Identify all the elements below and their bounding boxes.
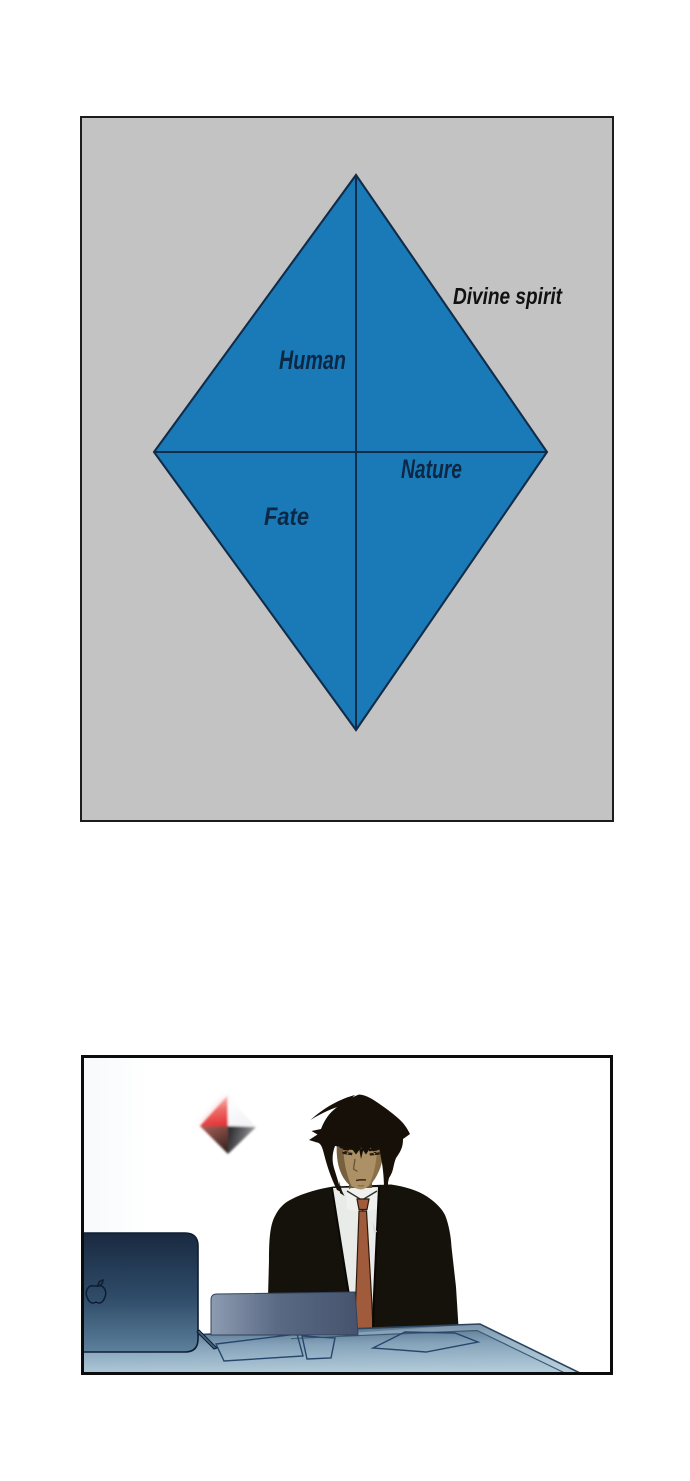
svg-text:Nature: Nature <box>401 454 462 484</box>
svg-text:Human: Human <box>279 345 346 375</box>
svg-text:Fate: Fate <box>264 503 309 531</box>
svg-text:Divine spirit: Divine spirit <box>453 283 563 309</box>
